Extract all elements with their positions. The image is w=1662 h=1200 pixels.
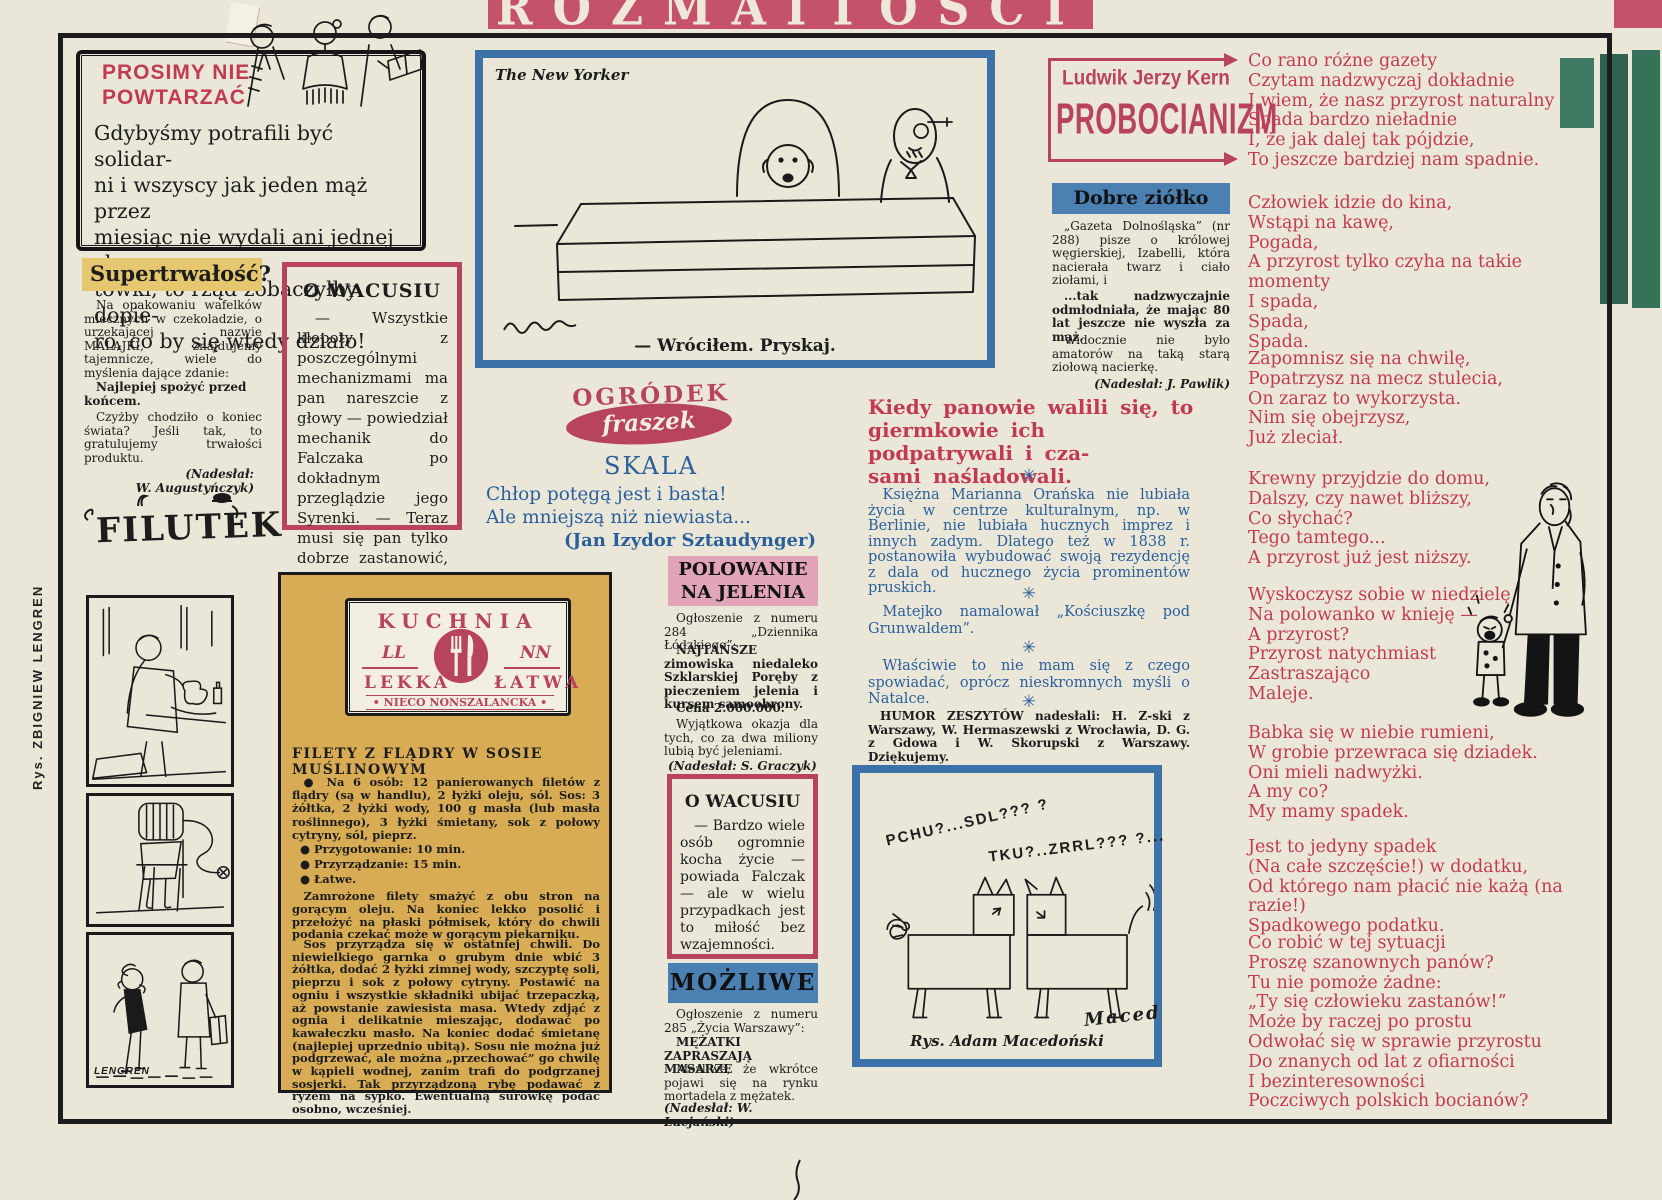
macedonski-dogs-drawing bbox=[866, 866, 1154, 1029]
recipe-bullet-3: ● Łatwe. bbox=[300, 872, 600, 886]
kuchnia-logo-rule bbox=[504, 667, 560, 669]
lengren-credit-vertical: Rys. ZBIGNIEW LENGREN bbox=[30, 490, 45, 790]
page-corner-artifact bbox=[1614, 0, 1662, 28]
mozliwe-p3: Możliwe, że wkrótce pojawi się na rynku … bbox=[664, 1063, 818, 1104]
macedonski-caption: Rys. Adam Macedoński bbox=[852, 1032, 1162, 1050]
filutek-panel-3-drawing bbox=[89, 935, 231, 1085]
newyorker-source-label: The New Yorker bbox=[495, 66, 628, 84]
filutek-logo-flourish bbox=[80, 492, 240, 542]
humor-separator-icon: ✳ bbox=[868, 584, 1190, 604]
poem-stanza-1: Co rano różne gazety Czytam nadzwyczaj d… bbox=[1248, 52, 1608, 171]
polowanie-credit: (Nadesłał: S. Graczyk) bbox=[668, 760, 818, 774]
filutek-panel-1 bbox=[86, 595, 234, 787]
kern-author: Ludwik Jerzy Kern bbox=[1062, 67, 1230, 91]
fraszki-author: (Jan Izydor Sztaudynger) bbox=[486, 530, 816, 551]
humor-item-1: Księżna Marianna Orańska nie lubiała życ… bbox=[868, 488, 1190, 597]
supertrwalosc-p3: Czyżby chodziło o koniec świata? Jeśli t… bbox=[84, 411, 262, 465]
filutek-panel-2 bbox=[86, 793, 234, 927]
man-with-child-illustration bbox=[1462, 468, 1610, 736]
wacusiu1-title: O WACUSIU bbox=[282, 280, 462, 302]
polowanie-p4: Wyjątkowa okazja dla tych, co za dwa mil… bbox=[664, 718, 818, 759]
newyorker-cartoon-drawing bbox=[485, 84, 985, 324]
fraszki-line-2: Ale mniejszą niż niewiasta... bbox=[486, 507, 751, 528]
fraszki-line-1: Chłop potęgą jest i basta! bbox=[486, 484, 727, 505]
scanned-newspaper-page: ROZMAITOŚCI PROSIMY NIE POWTARZAĆ Gdybyś… bbox=[0, 0, 1662, 1200]
kern-title: PROBOCIANIZM bbox=[1056, 96, 1278, 145]
ziolko-header: Dobre ziółko bbox=[1052, 183, 1230, 214]
supertrwalosc-title: Supertrwałość? bbox=[90, 261, 271, 286]
poem-stanza-3: Zapomnisz się na chwilę, Popatrzysz na m… bbox=[1248, 350, 1608, 449]
humor-separator-icon: ✳ bbox=[868, 466, 1190, 486]
ziolko-p3: Widocznie nie było amatorów na taką star… bbox=[1052, 334, 1230, 375]
filutek-signature: LENGREN bbox=[94, 1066, 150, 1077]
newyorker-caption: — Wróciłem. Pryskaj. bbox=[475, 336, 995, 356]
kuchnia-logo-left: LEKKA bbox=[364, 673, 451, 693]
supertrwalosc-p1: Na opakowaniu wafelków mlecznych w czeko… bbox=[84, 299, 262, 380]
recipe-step-1: Zamrożone filety smażyć z obu stron na g… bbox=[292, 890, 600, 941]
polowanie-p3: Cena 2.000.000. bbox=[664, 702, 818, 716]
kern-arrow-bottom bbox=[1224, 152, 1238, 166]
kuchnia-logo-nn: NN bbox=[520, 643, 551, 663]
recipe-ingredients: ● Na 6 osób: 12 panierowanych filetów z … bbox=[292, 776, 600, 842]
poem-stanza-7: Jest to jedyny spadek (Na całe szczęście… bbox=[1248, 838, 1608, 937]
fraszki-title: SKALA bbox=[486, 452, 816, 480]
poem-stanza-2: Człowiek idzie do kina, Wstąpi na kawę, … bbox=[1248, 194, 1608, 352]
supertrwalosc-credit: (Nadesłał: W. Augustyńczyk) bbox=[84, 468, 254, 495]
people-sketch-illustration bbox=[228, 6, 428, 116]
ziolko-p1: „Gazeta Dolnośląska” (nr 288) pisze o kr… bbox=[1052, 220, 1230, 288]
masthead-banner: ROZMAITOŚCI bbox=[488, 0, 1093, 29]
kuchnia-logo-ll: LL bbox=[382, 643, 406, 663]
humor-credit: HUMOR ZESZYTÓW nadesłali: H. Z-ski z War… bbox=[868, 710, 1190, 764]
recipe-bullet-2: ● Przyrządzanie: 15 min. bbox=[300, 857, 600, 871]
mozliwe-credit: (Nadesłał: W. Lucjański) bbox=[664, 1102, 818, 1129]
wacusiu1-body: — Wszystkie kłopoty z poszczególnymi mec… bbox=[297, 308, 448, 608]
mozliwe-header: MOŻLIWE bbox=[668, 963, 818, 1003]
poem-stanza-8: Co robić w tej sytuacji Proszę szanownyc… bbox=[1248, 934, 1608, 1112]
kern-arrow-top bbox=[1224, 53, 1238, 67]
humor-separator-icon: ✳ bbox=[868, 638, 1190, 658]
kuchnia-logo-right: ŁATWA bbox=[494, 673, 582, 693]
kuchnia-logo-rule bbox=[362, 667, 418, 669]
wacusiu2-title: O WACUSIU bbox=[667, 792, 818, 812]
recipe-bullet-1: ● Przygotowanie: 10 min. bbox=[300, 842, 600, 856]
recipe-step-2: Sos przyrządza się w ostatniej chwili. D… bbox=[292, 938, 600, 1116]
recipe-title: FILETY Z FLĄDRY W SOSIE MUŚLINOWYM bbox=[292, 746, 600, 778]
filutek-panel-1-drawing bbox=[89, 598, 231, 784]
ziolko-credit: (Nadesłał: J. Pawlik) bbox=[1052, 378, 1230, 392]
masthead-title: ROZMAITOŚCI bbox=[488, 0, 1093, 29]
mozliwe-p1: Ogłoszenie z numeru 285 „Życia Warszawy”… bbox=[664, 1008, 818, 1035]
filutek-panel-2-drawing bbox=[89, 796, 231, 924]
filutek-panel-3 bbox=[86, 932, 234, 1088]
humor-item-2: Matejko namalował „Kościuszkę pod Grunwa… bbox=[868, 604, 1190, 637]
kuchnia-logo-subtitle: • NIECO NONSZALANCKA • bbox=[366, 695, 554, 710]
green-strip-artifact bbox=[1632, 50, 1660, 308]
poem-stanza-6: Babka się w niebie rumieni, W grobie prz… bbox=[1248, 724, 1608, 823]
supertrwalosc-p2: Najlepiej spożyć przed końcem. bbox=[84, 381, 262, 408]
polowanie-header: POLOWANIE NA JELENIA bbox=[668, 556, 818, 606]
kuchnia-logo-box: KUCHNIA LL NN LEKKA ŁATWA • NIECO NONSZA… bbox=[345, 598, 571, 716]
wacusiu2-body: — Bardzo wiele osób ogromnie kocha życie… bbox=[680, 818, 805, 954]
cartoonist-signature bbox=[500, 316, 590, 336]
pen-mark-artifact bbox=[788, 1158, 808, 1200]
